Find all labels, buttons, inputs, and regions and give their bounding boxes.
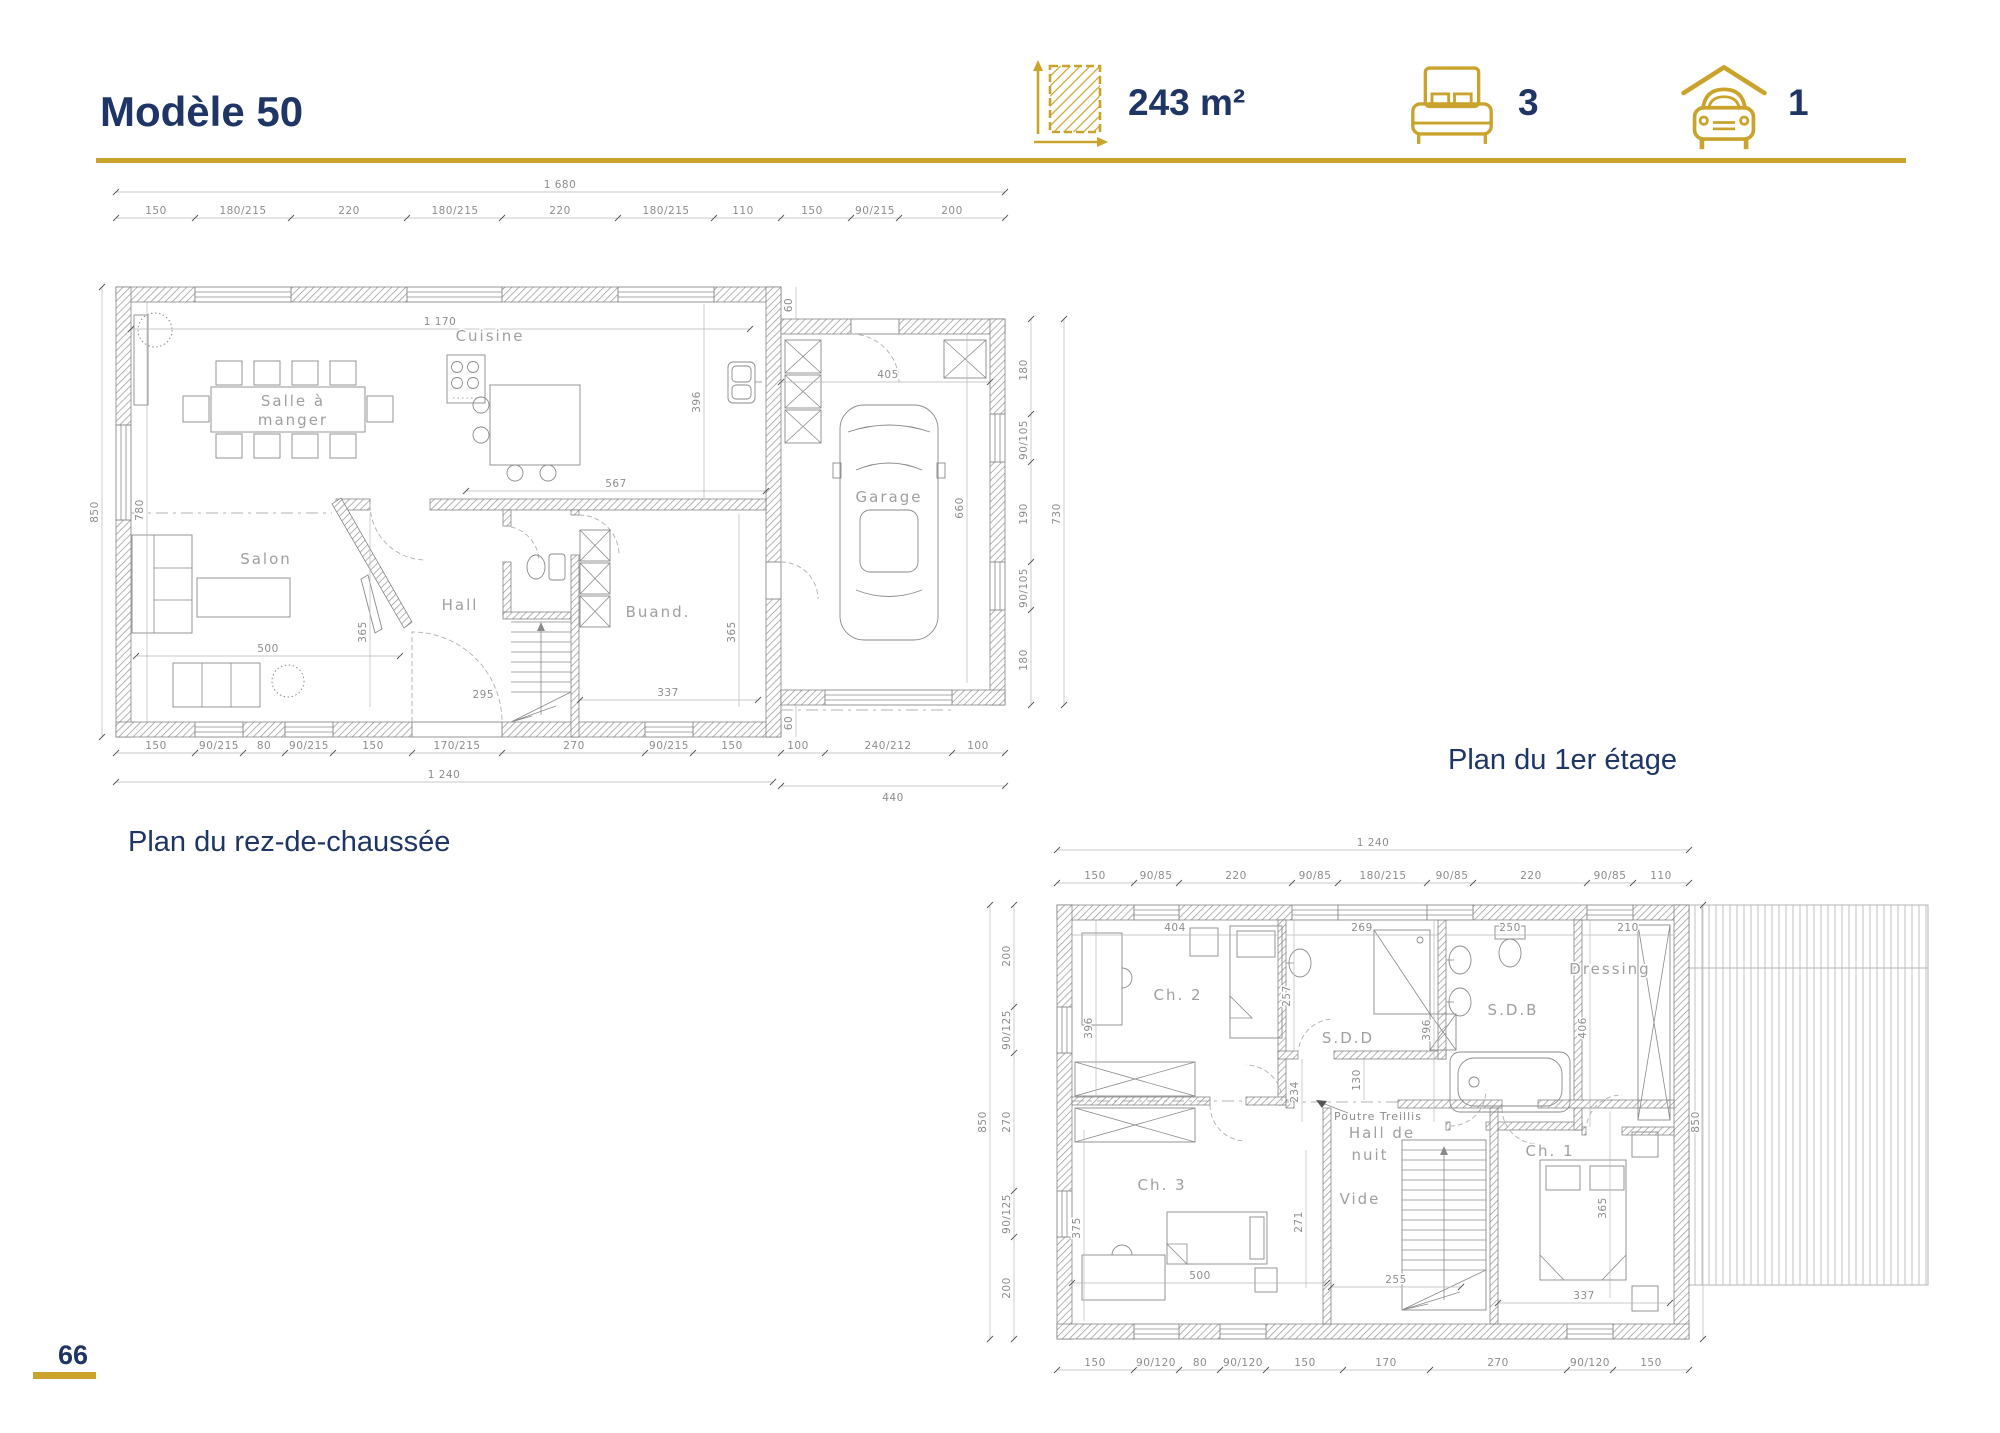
room-label-vide: Vide <box>1340 1190 1381 1208</box>
svg-text:375: 375 <box>1071 1217 1083 1239</box>
svg-text:396: 396 <box>691 391 703 413</box>
room-label-ch1: Ch. 1 <box>1525 1142 1574 1160</box>
svg-text:nuit: nuit <box>1351 1146 1388 1164</box>
ground-floor-plan: 1 680 150 180/215 220 180/215 220 180/21… <box>70 170 1080 835</box>
svg-text:90/120: 90/120 <box>1570 1357 1610 1369</box>
svg-text:90/105: 90/105 <box>1018 420 1030 460</box>
svg-text:150: 150 <box>721 740 743 752</box>
svg-text:405: 405 <box>877 369 899 381</box>
room-label-sdd: S.D.D <box>1322 1029 1374 1047</box>
area-value: 243 m² <box>1128 82 1245 124</box>
ground-doors <box>131 334 952 722</box>
svg-text:730: 730 <box>1051 503 1063 525</box>
svg-text:780: 780 <box>134 499 146 521</box>
ground-walls <box>116 287 1005 737</box>
svg-text:270: 270 <box>563 740 585 752</box>
svg-text:180/215: 180/215 <box>642 205 689 217</box>
svg-text:500: 500 <box>257 643 279 655</box>
svg-text:250: 250 <box>1499 922 1521 934</box>
svg-text:90/215: 90/215 <box>855 205 895 217</box>
svg-text:90/85: 90/85 <box>1436 870 1469 882</box>
svg-text:257: 257 <box>1281 985 1293 1007</box>
first-floor-plan: 1 240 150 90/85 220 90/85 180/215 90/85 … <box>950 800 2000 1433</box>
room-label-garage: Garage <box>856 488 923 506</box>
ground-room-labels: Salle à manger Cuisine Salon Hall Buand.… <box>240 327 922 621</box>
svg-text:220: 220 <box>549 205 571 217</box>
svg-text:90/120: 90/120 <box>1223 1357 1263 1369</box>
svg-text:150: 150 <box>145 740 167 752</box>
svg-text:150: 150 <box>801 205 823 217</box>
svg-text:90/215: 90/215 <box>199 740 239 752</box>
svg-text:396: 396 <box>1083 1017 1095 1039</box>
svg-text:150: 150 <box>145 205 167 217</box>
svg-text:60: 60 <box>783 716 795 730</box>
svg-text:180/215: 180/215 <box>1359 870 1406 882</box>
svg-text:manger: manger <box>258 411 328 429</box>
svg-text:200: 200 <box>1001 945 1013 967</box>
svg-text:150: 150 <box>1084 1357 1106 1369</box>
svg-text:100: 100 <box>967 740 989 752</box>
svg-text:255: 255 <box>1385 1274 1407 1286</box>
svg-text:80: 80 <box>257 740 271 752</box>
svg-text:180/215: 180/215 <box>431 205 478 217</box>
area-icon <box>1028 58 1112 152</box>
svg-text:180/215: 180/215 <box>219 205 266 217</box>
svg-text:220: 220 <box>1520 870 1542 882</box>
svg-text:150: 150 <box>1294 1357 1316 1369</box>
page-number-underline <box>33 1372 96 1379</box>
svg-text:90/105: 90/105 <box>1018 568 1030 608</box>
room-label-sdb: S.D.B <box>1488 1001 1539 1019</box>
page-number: 66 <box>58 1340 88 1371</box>
caption-ground-floor: Plan du rez-de-chaussée <box>128 826 450 859</box>
svg-text:170: 170 <box>1375 1357 1397 1369</box>
room-label-laundry: Buand. <box>626 603 691 621</box>
svg-text:240/212: 240/212 <box>864 740 911 752</box>
svg-text:170/215: 170/215 <box>433 740 480 752</box>
svg-text:130: 130 <box>1351 1069 1363 1091</box>
svg-text:90/85: 90/85 <box>1140 870 1173 882</box>
bedrooms-value: 3 <box>1518 82 1539 124</box>
svg-text:269: 269 <box>1351 922 1373 934</box>
room-label-dressing: Dressing <box>1569 960 1650 978</box>
svg-text:365: 365 <box>357 621 369 643</box>
svg-text:440: 440 <box>882 792 904 804</box>
svg-text:406: 406 <box>1577 1017 1589 1039</box>
garage-icon <box>1678 56 1770 154</box>
svg-text:150: 150 <box>1640 1357 1662 1369</box>
svg-text:80: 80 <box>1193 1357 1207 1369</box>
svg-text:500: 500 <box>1189 1270 1211 1282</box>
svg-text:295: 295 <box>472 689 494 701</box>
dim-label: 1 680 <box>544 179 577 191</box>
svg-text:660: 660 <box>954 497 966 519</box>
svg-text:1 240: 1 240 <box>1357 837 1390 849</box>
svg-text:271: 271 <box>1293 1211 1305 1233</box>
svg-text:850: 850 <box>89 501 101 523</box>
svg-text:150: 150 <box>1084 870 1106 882</box>
svg-text:404: 404 <box>1164 922 1186 934</box>
bed-icon <box>1402 62 1502 150</box>
room-label-living: Salon <box>240 550 292 568</box>
svg-text:396: 396 <box>1421 1019 1433 1041</box>
svg-text:270: 270 <box>1487 1357 1509 1369</box>
svg-text:337: 337 <box>657 687 679 699</box>
svg-text:110: 110 <box>732 205 754 217</box>
svg-text:234: 234 <box>1289 1081 1301 1103</box>
garage-value: 1 <box>1788 82 1809 124</box>
svg-text:90/215: 90/215 <box>289 740 329 752</box>
room-label-hall: Hall <box>442 596 479 614</box>
svg-text:365: 365 <box>1597 1197 1609 1219</box>
svg-text:110: 110 <box>1650 870 1672 882</box>
svg-text:200: 200 <box>941 205 963 217</box>
car-top-view <box>833 405 945 640</box>
svg-text:220: 220 <box>338 205 360 217</box>
room-label-hall-nuit: Hall de <box>1349 1124 1415 1142</box>
svg-text:567: 567 <box>605 478 627 490</box>
ground-windows <box>116 287 1005 737</box>
svg-text:90/120: 90/120 <box>1136 1357 1176 1369</box>
gold-divider <box>96 158 1906 163</box>
svg-text:60: 60 <box>783 298 795 312</box>
room-label-ch2: Ch. 2 <box>1153 986 1202 1004</box>
svg-text:180: 180 <box>1018 359 1030 381</box>
svg-text:210: 210 <box>1617 922 1639 934</box>
room-label-dining: Salle à <box>261 392 325 410</box>
svg-text:200: 200 <box>1001 1277 1013 1299</box>
beam-annotation: Poutre Treillis <box>1334 1110 1422 1123</box>
svg-text:90/85: 90/85 <box>1594 870 1627 882</box>
svg-text:220: 220 <box>1225 870 1247 882</box>
svg-text:90/125: 90/125 <box>1001 1010 1013 1050</box>
svg-text:90/215: 90/215 <box>649 740 689 752</box>
page-title: Modèle 50 <box>100 88 303 136</box>
svg-text:190: 190 <box>1018 503 1030 525</box>
caption-first-floor: Plan du 1er étage <box>1448 744 1677 777</box>
svg-text:1 240: 1 240 <box>428 769 461 781</box>
svg-text:365: 365 <box>726 621 738 643</box>
page: Modèle 50 243 m² 3 1 <box>0 0 2000 1433</box>
svg-text:180: 180 <box>1018 649 1030 671</box>
svg-text:1 170: 1 170 <box>424 316 457 328</box>
svg-text:150: 150 <box>362 740 384 752</box>
room-label-ch3: Ch. 3 <box>1137 1176 1186 1194</box>
svg-text:850: 850 <box>1690 1111 1702 1133</box>
svg-text:270: 270 <box>1001 1111 1013 1133</box>
svg-text:850: 850 <box>977 1111 989 1133</box>
room-label-kitchen: Cuisine <box>456 327 525 345</box>
roof-area <box>1689 905 1928 1285</box>
svg-text:90/85: 90/85 <box>1299 870 1332 882</box>
svg-text:90/125: 90/125 <box>1001 1194 1013 1234</box>
ground-furniture <box>132 313 986 722</box>
svg-text:337: 337 <box>1573 1290 1595 1302</box>
svg-text:100: 100 <box>787 740 809 752</box>
